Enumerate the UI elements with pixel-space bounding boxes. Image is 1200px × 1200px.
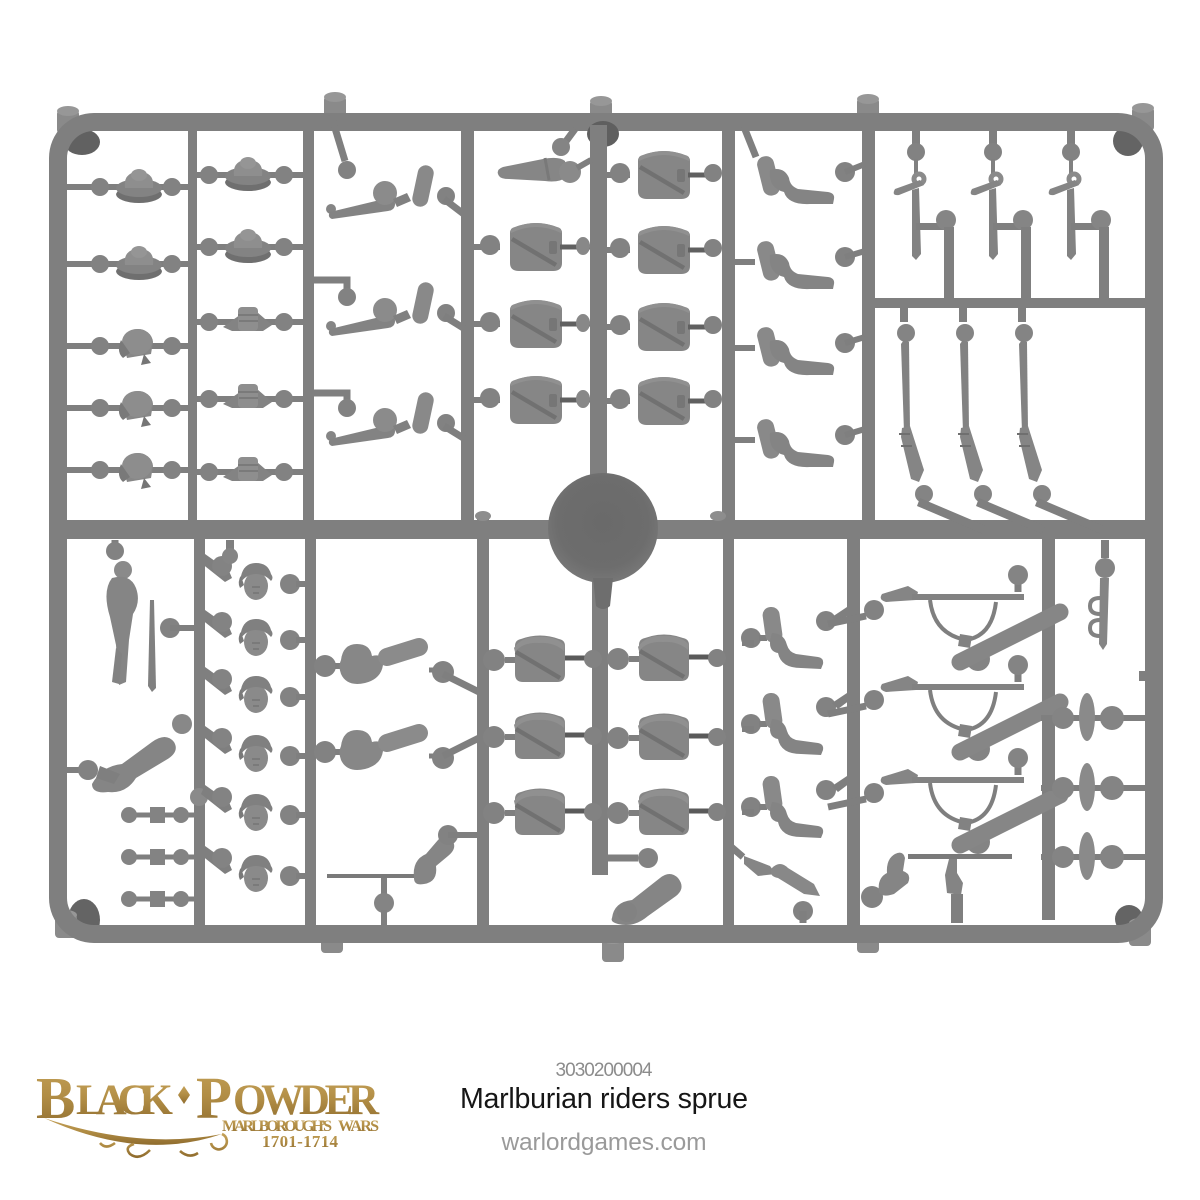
svg-text:LACK: LACK [76,1077,174,1124]
svg-text:B: B [36,1065,75,1131]
svg-text:OWDER: OWDER [233,1077,380,1124]
svg-text:WARS: WARS [338,1118,379,1135]
svg-text:3030200004: 3030200004 [556,1060,653,1081]
svg-text:1701-1714: 1701-1714 [262,1132,339,1151]
svg-text:Marlburian riders sprue: Marlburian riders sprue [460,1083,748,1115]
svg-text:warlordgames.com: warlordgames.com [501,1129,707,1156]
